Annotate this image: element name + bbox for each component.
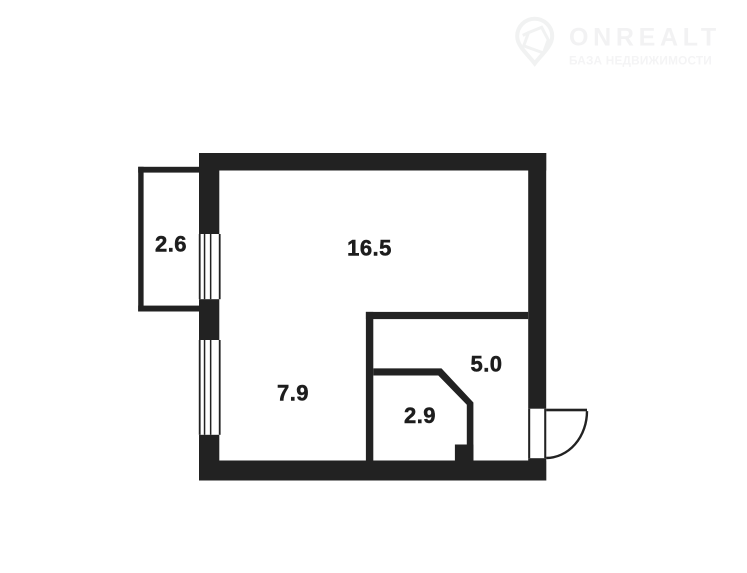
svg-text:2.6: 2.6 [155,232,187,257]
svg-text:7.9: 7.9 [277,381,309,406]
svg-text:5.0: 5.0 [470,352,502,377]
svg-text:БАЗА НЕДВИЖИМОСТИ: БАЗА НЕДВИЖИМОСТИ [569,54,712,68]
svg-text:16.5: 16.5 [347,236,392,261]
svg-text:ONREALT: ONREALT [569,24,721,52]
svg-text:2.9: 2.9 [404,403,436,428]
